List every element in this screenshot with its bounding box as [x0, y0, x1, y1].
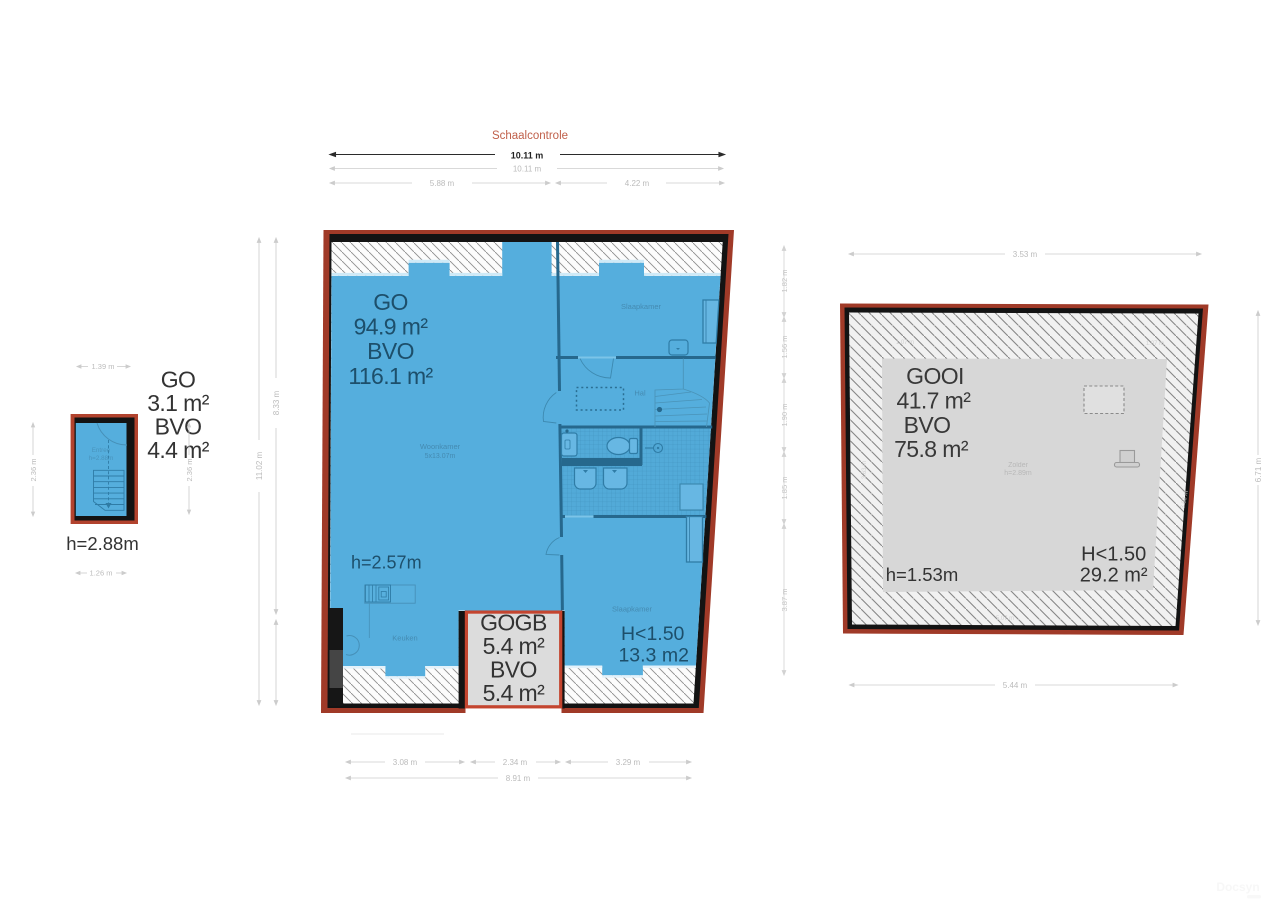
svg-text:5x13.07m: 5x13.07m [425, 453, 456, 460]
svg-text:GOGB: GOGB [480, 610, 547, 636]
svg-text:Slaapkamer: Slaapkamer [612, 605, 653, 614]
svg-text:h=2.89m: h=2.89m [1004, 470, 1032, 477]
svg-text:h=1.53m: h=1.53m [886, 564, 959, 585]
svg-text:4.4 m²: 4.4 m² [147, 437, 210, 463]
svg-text:5.44 m: 5.44 m [1003, 681, 1028, 690]
svg-text:5.4 m²: 5.4 m² [483, 633, 546, 659]
svg-text:BVO: BVO [367, 338, 414, 364]
svg-text:5.4 m²: 5.4 m² [483, 680, 546, 706]
svg-text:11.02 m: 11.02 m [255, 452, 264, 481]
svg-text:Zolder: Zolder [1008, 462, 1029, 469]
svg-text:1.85 m: 1.85 m [780, 477, 789, 500]
svg-text:3.87 m: 3.87 m [780, 589, 789, 612]
svg-text:29.2 m²: 29.2 m² [1080, 564, 1148, 586]
svg-text:H<1.50: H<1.50 [1081, 544, 1146, 566]
svg-text:10.11 m: 10.11 m [511, 150, 544, 160]
svg-text:1.07 m: 1.07 m [896, 340, 914, 346]
svg-text:2.34 m: 2.34 m [503, 758, 528, 767]
svg-text:8.33 m: 8.33 m [272, 390, 281, 415]
svg-text:Hal: Hal [634, 389, 646, 398]
svg-text:3.1 m²: 3.1 m² [147, 390, 210, 416]
svg-text:2.36 m: 2.36 m [29, 459, 38, 482]
svg-text:2.36 m: 2.36 m [185, 459, 194, 482]
svg-text:BVO: BVO [155, 414, 202, 440]
svg-text:8.91 m: 8.91 m [506, 774, 531, 783]
svg-text:Woonkamer: Woonkamer [420, 442, 461, 451]
svg-text:94.9 m²: 94.9 m² [354, 314, 429, 340]
svg-text:3.29 m: 3.29 m [616, 758, 641, 767]
svg-text:41.7 m²: 41.7 m² [897, 387, 972, 413]
svg-text:Keuken: Keuken [392, 634, 417, 643]
svg-text:h=2.88m: h=2.88m [66, 533, 139, 554]
svg-text:BVO: BVO [490, 657, 537, 683]
svg-text:1.07 m: 1.07 m [1146, 341, 1164, 347]
svg-text:13.3 m2: 13.3 m2 [618, 645, 688, 667]
svg-text:1.82 m: 1.82 m [780, 270, 789, 293]
svg-text:GO: GO [161, 367, 196, 393]
svg-text:75.8 m²: 75.8 m² [894, 436, 969, 462]
svg-text:Entree: Entree [92, 447, 111, 454]
svg-text:1.39 m: 1.39 m [92, 362, 115, 371]
svg-text:H<1.50: H<1.50 [621, 623, 685, 645]
svg-text:Slaapkamer: Slaapkamer [621, 302, 662, 311]
svg-text:3.08 m: 3.08 m [393, 758, 418, 767]
svg-text:1.56 m: 1.56 m [780, 336, 789, 359]
svg-text:BVO: BVO [904, 412, 951, 438]
svg-text:4.22 m: 4.22 m [625, 179, 650, 188]
svg-text:5.88 m: 5.88 m [430, 179, 455, 188]
svg-text:3.63 m: 3.63 m [862, 461, 868, 479]
svg-text:Docsyn: Docsyn [1216, 880, 1259, 894]
svg-text:1.90 m: 1.90 m [780, 404, 789, 427]
svg-text:3.53 m: 3.53 m [1013, 250, 1038, 259]
svg-text:Schaalcontrole: Schaalcontrole [492, 130, 568, 142]
svg-text:6.71 m: 6.71 m [1254, 457, 1263, 482]
svg-text:h=2.57m: h=2.57m [351, 553, 422, 573]
svg-text:5.07 m: 5.07 m [996, 616, 1014, 622]
svg-text:1.26 m: 1.26 m [90, 569, 113, 578]
svg-text:h=2.88m: h=2.88m [89, 455, 114, 462]
svg-text:10.11 m: 10.11 m [513, 165, 542, 174]
svg-text:GO: GO [373, 289, 408, 315]
svg-text:116.1 m²: 116.1 m² [348, 363, 433, 389]
svg-text:GOOI: GOOI [906, 363, 964, 389]
